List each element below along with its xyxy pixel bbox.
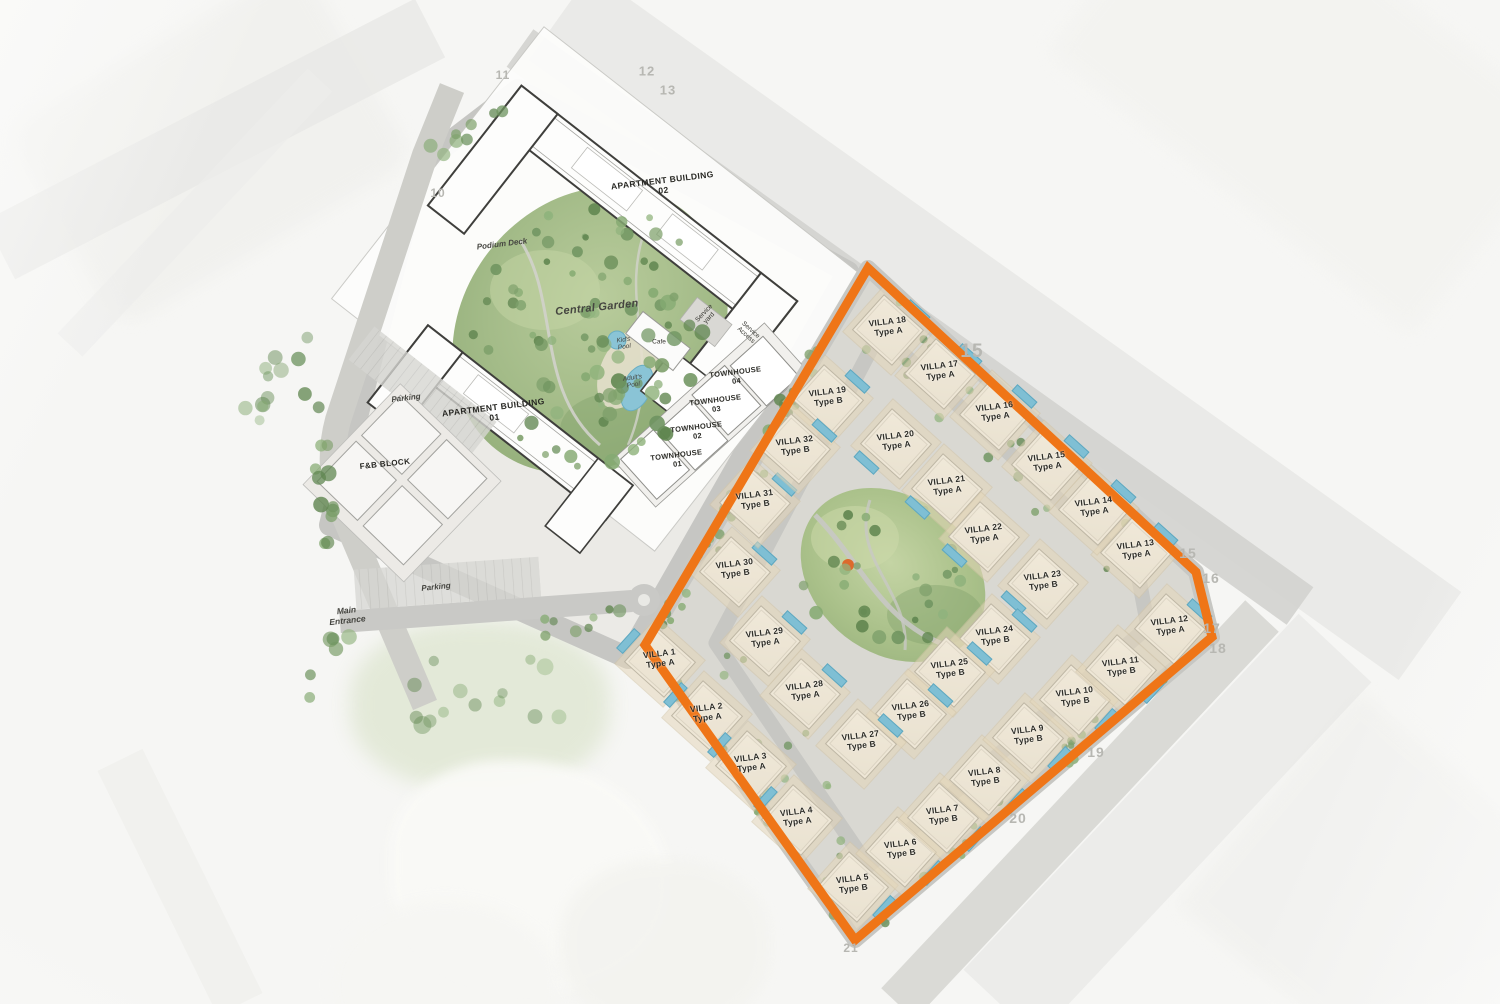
parcel-number: 13 (660, 83, 676, 98)
villa-label: VILLA 29Type A (745, 626, 785, 650)
parcel-number: 12 (639, 64, 655, 79)
fnb-block-label: F&B BLOCK (359, 457, 410, 471)
parcel-number: 21 (843, 941, 858, 955)
villa-label: VILLA 25Type B (930, 657, 970, 681)
villa-label: VILLA 13Type A (1116, 538, 1156, 562)
villa-label: VILLA 4Type A (780, 805, 815, 828)
villa-label: VILLA 16Type A (975, 400, 1015, 424)
podium-deck-label: Podium Deck (476, 236, 527, 251)
villa-label: VILLA 14Type A (1074, 495, 1114, 519)
villa-label: VILLA 1Type A (643, 647, 678, 670)
townhouse-label: TOWNHOUSE04 (709, 365, 763, 388)
villa-label: VILLA 5Type B (836, 872, 871, 895)
villa-label: VILLA 24Type B (975, 624, 1015, 648)
parking-south-label: Parking (421, 581, 451, 593)
villa-label: VILLA 17Type A (920, 359, 960, 383)
parcel-number: 19 (1087, 744, 1105, 760)
main-entrance-label: Main Entrance (328, 604, 366, 627)
parcel-number: 10 (430, 186, 445, 200)
villa-label: VILLA 10Type B (1055, 685, 1095, 709)
parcel-number: 17 (1203, 620, 1221, 636)
villa-label: VILLA 30Type B (715, 557, 755, 581)
villa-label: VILLA 20Type A (876, 429, 916, 453)
parcel-number: 15 (1179, 545, 1197, 561)
parcel-number: 11 (496, 68, 511, 82)
townhouse-label: TOWNHOUSE03 (689, 393, 743, 416)
apartment-building-02-label: APARTMENT BUILDING 02 (611, 170, 716, 202)
villa-label: VILLA 9Type B (1011, 723, 1046, 746)
villa-label: VILLA 8Type B (968, 765, 1003, 788)
service-yard-label: Service yard (694, 303, 720, 329)
villa-label: VILLA 15Type A (1027, 450, 1067, 474)
adults-pool-label: Adult's Pool (622, 373, 643, 390)
villa-label: VILLA 18Type A (868, 315, 908, 339)
labels-layer: VILLA 1Type AVILLA 2Type AVILLA 3Type AV… (0, 0, 1500, 1004)
parcel-number: 18 (1209, 640, 1227, 656)
apartment-building-01-label: APARTMENT BUILDING 01 (442, 397, 547, 429)
villa-label: VILLA 11Type B (1101, 655, 1140, 679)
villa-label: VILLA 22Type A (964, 522, 1004, 546)
cafe-label: Cafe (652, 338, 666, 345)
parcel-number: 16 (1202, 570, 1220, 586)
villa-label: VILLA 23Type B (1023, 569, 1063, 593)
villa-label: VILLA 26Type B (891, 699, 931, 723)
villa-label: VILLA 28Type A (785, 679, 825, 703)
kids-pool-label: Kid's Pool (616, 336, 632, 353)
villa-label: VILLA 19Type B (808, 385, 848, 409)
villa-label: VILLA 3Type A (734, 751, 769, 774)
villa-label: VILLA 27Type B (841, 729, 881, 753)
villa-label: VILLA 32Type B (775, 434, 815, 458)
townhouse-label: TOWNHOUSE02 (670, 420, 724, 443)
service-access-label: Service Access (735, 320, 761, 346)
villa-label: VILLA 12Type A (1150, 614, 1190, 638)
villa-label: VILLA 7Type B (926, 803, 961, 826)
villa-label: VILLA 2Type A (690, 701, 725, 724)
parcel-number: 20 (1009, 810, 1027, 826)
parking-north-label: Parking (391, 392, 421, 405)
central-garden-label: Central Garden (555, 297, 640, 318)
master-plan-canvas: VILLA 1Type AVILLA 2Type AVILLA 3Type AV… (0, 0, 1500, 1004)
villa-label: VILLA 31Type B (735, 488, 775, 512)
townhouse-label: TOWNHOUSE01 (650, 448, 704, 471)
villa-label: VILLA 21Type A (927, 474, 967, 498)
parcel-number: 15 (960, 341, 983, 363)
villa-label: VILLA 6Type B (884, 837, 919, 860)
